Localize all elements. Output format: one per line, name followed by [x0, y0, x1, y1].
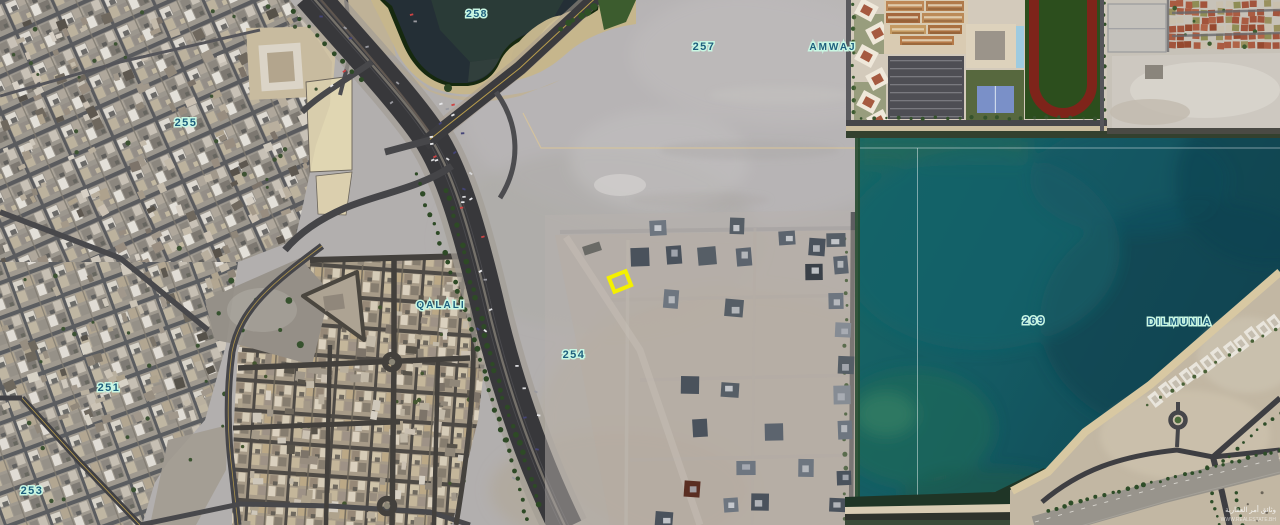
svg-text:254: 254 [563, 349, 586, 361]
svg-text:255: 255 [175, 117, 198, 129]
svg-text:AMWAJ: AMWAJ [809, 42, 856, 53]
svg-text:251: 251 [98, 382, 121, 394]
svg-text:258: 258 [466, 8, 488, 20]
svg-text:257: 257 [693, 41, 716, 53]
svg-text:253: 253 [21, 485, 44, 497]
svg-text:269: 269 [1023, 315, 1046, 327]
svg-text:WWW.REALESTATE.BH: WWW.REALESTATE.BH [1221, 517, 1277, 523]
svg-text:QALALI: QALALI [416, 300, 465, 311]
svg-text:DILMUNIA: DILMUNIA [1148, 317, 1213, 328]
